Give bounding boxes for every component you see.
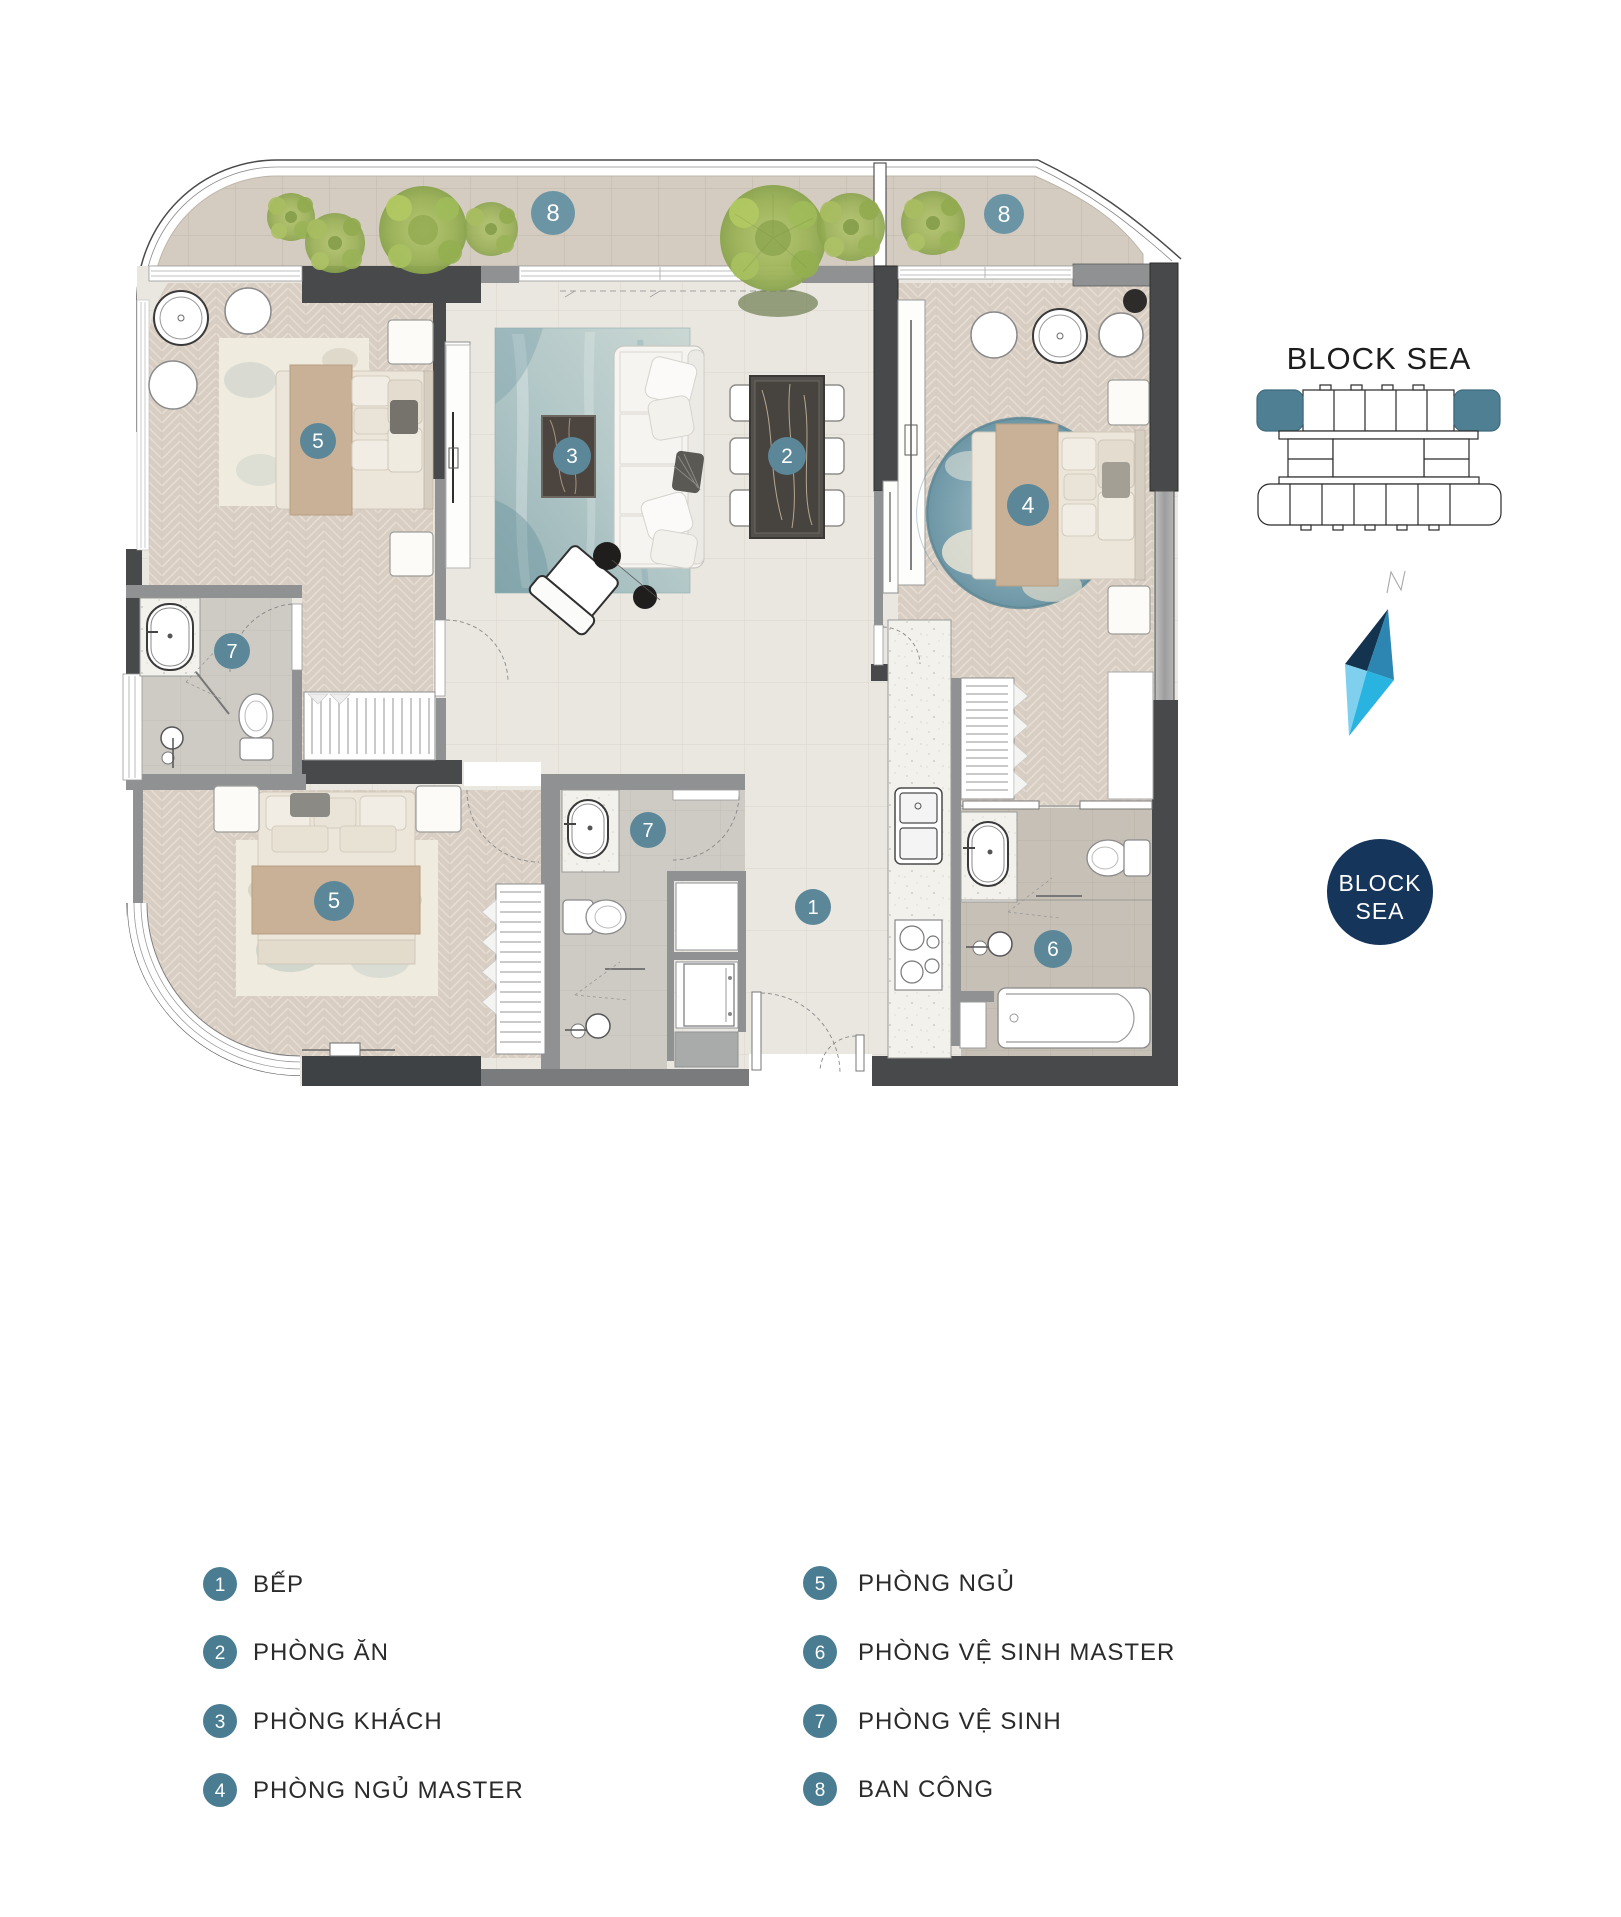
svg-text:1: 1 — [215, 1575, 226, 1596]
svg-text:BLOCK SEA: BLOCK SEA — [1287, 341, 1472, 376]
svg-text:BAN CÔNG: BAN CÔNG — [858, 1775, 994, 1803]
svg-text:PHÒNG KHÁCH: PHÒNG KHÁCH — [253, 1708, 443, 1735]
svg-text:7: 7 — [226, 641, 237, 663]
svg-text:8: 8 — [815, 1780, 826, 1801]
svg-text:PHÒNG ĂN: PHÒNG ĂN — [253, 1639, 389, 1666]
svg-text:PHÒNG NGỦ: PHÒNG NGỦ — [858, 1568, 1015, 1597]
svg-text:3: 3 — [566, 445, 578, 468]
svg-text:4: 4 — [1022, 492, 1035, 518]
svg-text:2: 2 — [781, 445, 793, 468]
svg-text:SEA: SEA — [1355, 898, 1404, 924]
svg-text:7: 7 — [815, 1712, 826, 1733]
svg-text:3: 3 — [215, 1712, 226, 1733]
svg-text:2: 2 — [215, 1643, 226, 1664]
svg-text:5: 5 — [312, 430, 324, 453]
svg-text:PHÒNG VỆ SINH: PHÒNG VỆ SINH — [858, 1708, 1062, 1735]
svg-text:8: 8 — [546, 200, 559, 227]
svg-text:BẾP: BẾP — [253, 1570, 304, 1598]
svg-text:6: 6 — [1047, 938, 1059, 961]
svg-text:4: 4 — [215, 1781, 226, 1802]
svg-text:7: 7 — [642, 820, 653, 842]
svg-text:5: 5 — [815, 1574, 826, 1595]
svg-text:PHÒNG NGỦ MASTER: PHÒNG NGỦ MASTER — [253, 1775, 524, 1804]
svg-text:6: 6 — [815, 1643, 826, 1664]
svg-text:BLOCK: BLOCK — [1339, 870, 1422, 896]
svg-text:PHÒNG VỆ SINH MASTER: PHÒNG VỆ SINH MASTER — [858, 1639, 1175, 1666]
svg-text:5: 5 — [328, 888, 340, 913]
svg-text:8: 8 — [998, 201, 1011, 227]
svg-text:1: 1 — [807, 897, 818, 919]
